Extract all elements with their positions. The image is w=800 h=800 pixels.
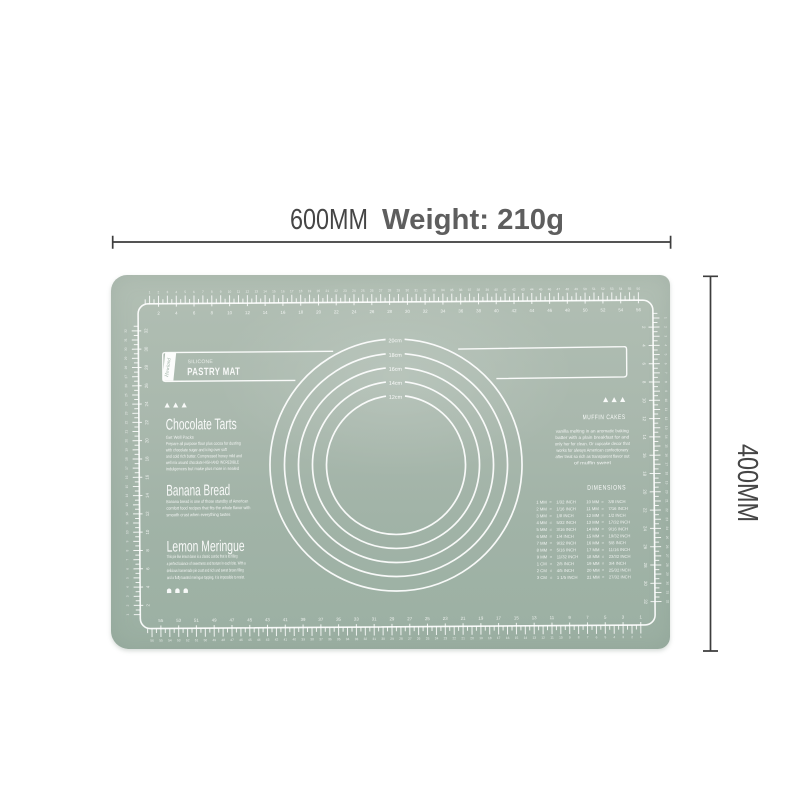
svg-text:25: 25 — [361, 289, 365, 293]
svg-text:4: 4 — [175, 311, 178, 316]
svg-text:26: 26 — [643, 544, 648, 549]
svg-text:26: 26 — [665, 545, 669, 549]
svg-text:22: 22 — [144, 419, 149, 424]
svg-text:2/5 INCH: 2/5 INCH — [557, 561, 574, 566]
svg-text:41: 41 — [503, 288, 507, 292]
svg-text:53: 53 — [177, 638, 181, 642]
svg-text:56: 56 — [637, 287, 641, 291]
svg-text:12: 12 — [125, 512, 129, 516]
svg-text:25: 25 — [665, 536, 669, 540]
svg-text:16: 16 — [664, 453, 668, 457]
svg-text:28: 28 — [665, 563, 669, 567]
svg-text:22: 22 — [643, 508, 648, 513]
svg-text:24: 24 — [352, 289, 356, 293]
svg-text:23: 23 — [665, 517, 669, 521]
svg-text:14: 14 — [263, 289, 267, 293]
svg-text:16cm: 16cm — [389, 367, 403, 373]
svg-text:38: 38 — [476, 308, 481, 313]
svg-text:=: = — [549, 506, 552, 511]
svg-text:12: 12 — [145, 511, 150, 516]
svg-text:15 MM: 15 MM — [587, 534, 600, 539]
svg-text:8: 8 — [211, 290, 213, 294]
svg-text:MUFFIN CAKES: MUFFIN CAKES — [583, 414, 626, 421]
svg-text:after treat so rich as transpa: after treat so rich as transparent flavo… — [555, 454, 630, 460]
svg-text:28: 28 — [124, 366, 128, 370]
svg-text:39: 39 — [301, 617, 306, 622]
svg-text:=: = — [550, 554, 553, 559]
svg-text:51: 51 — [194, 618, 199, 623]
svg-text:14: 14 — [664, 435, 668, 439]
svg-text:20: 20 — [642, 489, 647, 494]
svg-text:19: 19 — [479, 636, 483, 640]
svg-text:32: 32 — [666, 600, 670, 604]
svg-text:19 MM: 19 MM — [587, 561, 600, 566]
svg-text:indulgences but make plus more: indulgences but make plus more in sealed — [166, 466, 240, 472]
svg-text:9: 9 — [220, 290, 222, 294]
svg-text:7: 7 — [587, 635, 589, 639]
svg-text:13 MM: 13 MM — [586, 520, 599, 525]
svg-text:48: 48 — [565, 287, 569, 291]
svg-text:17: 17 — [125, 466, 129, 470]
svg-text:5/16 INCH: 5/16 INCH — [557, 547, 577, 552]
svg-text:with chocolate sugar and icing: with chocolate sugar and icing over soft — [166, 447, 228, 452]
svg-text:30: 30 — [144, 346, 149, 351]
svg-text:only her for clean. Or cupcake: only her for clean. Or cupcake decor tha… — [555, 441, 631, 447]
svg-text:54: 54 — [168, 638, 172, 642]
svg-text:2: 2 — [631, 635, 633, 639]
svg-text:12cm: 12cm — [389, 395, 403, 401]
svg-text:21: 21 — [461, 616, 466, 621]
svg-text:31: 31 — [124, 338, 128, 342]
svg-text:16: 16 — [281, 289, 285, 293]
svg-text:47: 47 — [557, 287, 561, 291]
svg-text:25: 25 — [426, 637, 430, 641]
svg-text:37: 37 — [318, 617, 323, 622]
svg-text:13: 13 — [254, 289, 258, 293]
svg-text:4: 4 — [664, 344, 668, 346]
svg-text:comfort food recipes that fits: comfort food recipes that fits the whole… — [166, 505, 251, 511]
svg-text:34: 34 — [441, 288, 445, 292]
svg-text:26: 26 — [369, 309, 374, 314]
svg-text:56: 56 — [150, 639, 154, 643]
svg-text:3: 3 — [166, 290, 168, 294]
svg-text:47: 47 — [230, 638, 234, 642]
svg-text:20: 20 — [317, 289, 321, 293]
svg-text:17/32 INCH: 17/32 INCH — [608, 519, 630, 524]
svg-text:10: 10 — [559, 636, 563, 640]
svg-text:5/8 INCH: 5/8 INCH — [609, 540, 626, 545]
svg-text:21: 21 — [665, 499, 669, 503]
svg-text:14: 14 — [263, 310, 268, 315]
svg-text:1 CM: 1 CM — [537, 561, 548, 566]
svg-text:10 MM: 10 MM — [586, 499, 599, 504]
svg-text:9/16 INCH: 9/16 INCH — [608, 526, 628, 531]
svg-text:9: 9 — [125, 540, 129, 542]
svg-text:8 MM: 8 MM — [537, 548, 548, 553]
svg-text:27: 27 — [124, 375, 128, 379]
svg-text:2: 2 — [158, 290, 160, 294]
svg-text:9/32 INCH: 9/32 INCH — [557, 540, 577, 545]
svg-text:39: 39 — [301, 637, 305, 641]
svg-text:10: 10 — [664, 398, 668, 402]
svg-text:52: 52 — [601, 307, 606, 312]
svg-text:44: 44 — [529, 308, 534, 313]
svg-text:11/16 INCH: 11/16 INCH — [609, 547, 631, 552]
svg-text:20cm: 20cm — [388, 338, 402, 344]
svg-text:25: 25 — [425, 616, 430, 621]
svg-text:12: 12 — [245, 310, 250, 315]
svg-text:55: 55 — [159, 639, 163, 643]
svg-text:9: 9 — [664, 390, 668, 392]
svg-text:3/4 INCH: 3/4 INCH — [609, 561, 626, 566]
svg-text:2: 2 — [126, 604, 130, 606]
svg-text:batter with a plain breakfast: batter with a plain breakfast for and — [555, 434, 630, 440]
svg-text:20 MM: 20 MM — [587, 568, 600, 573]
svg-text:4: 4 — [613, 635, 615, 639]
svg-text:37: 37 — [468, 288, 472, 292]
svg-text:30: 30 — [124, 347, 128, 351]
svg-text:15: 15 — [125, 485, 129, 489]
svg-text:16: 16 — [125, 475, 129, 479]
svg-text:of muffin sweet: of muffin sweet — [574, 460, 612, 465]
svg-text:33: 33 — [355, 637, 359, 641]
svg-text:10: 10 — [145, 529, 150, 534]
svg-text:29: 29 — [397, 288, 401, 292]
svg-text:=: = — [550, 575, 553, 580]
svg-text:24: 24 — [124, 402, 128, 406]
svg-text:28: 28 — [399, 637, 403, 641]
svg-text:1: 1 — [663, 317, 667, 319]
svg-text:54: 54 — [618, 307, 623, 312]
svg-text:2 MM: 2 MM — [536, 506, 547, 511]
svg-text:=: = — [602, 568, 605, 573]
svg-text:vanilla melting in an aromatic: vanilla melting in an aromatic baking — [556, 428, 630, 434]
svg-text:22: 22 — [334, 289, 338, 293]
svg-text:14cm: 14cm — [389, 381, 403, 387]
svg-text:33: 33 — [432, 288, 436, 292]
svg-text:6: 6 — [664, 363, 668, 365]
svg-text:17: 17 — [496, 616, 501, 621]
svg-text:20: 20 — [470, 636, 474, 640]
svg-text:55: 55 — [158, 618, 163, 623]
svg-text:13: 13 — [664, 426, 668, 430]
svg-text:12: 12 — [664, 417, 668, 421]
svg-text:27: 27 — [665, 554, 669, 558]
svg-text:19: 19 — [478, 616, 483, 621]
svg-text:44: 44 — [257, 638, 261, 642]
svg-text:1/16 INCH: 1/16 INCH — [556, 506, 576, 511]
svg-text:27: 27 — [407, 616, 412, 621]
svg-text:40: 40 — [494, 308, 499, 313]
svg-text:=: = — [549, 527, 552, 532]
svg-text:15: 15 — [272, 289, 276, 293]
svg-text:3: 3 — [126, 595, 130, 597]
svg-text:30: 30 — [665, 581, 669, 585]
svg-text:29: 29 — [389, 616, 394, 621]
svg-text:=: = — [602, 575, 605, 580]
svg-text:47: 47 — [229, 617, 234, 622]
svg-text:well mix around chocolate HIGH: well mix around chocolate HIGH AND INCRE… — [166, 460, 239, 466]
svg-text:=: = — [601, 499, 604, 504]
svg-text:49: 49 — [212, 638, 216, 642]
svg-text:8: 8 — [125, 549, 129, 551]
svg-text:27: 27 — [408, 637, 412, 641]
svg-text:27/32 INCH: 27/32 INCH — [609, 574, 631, 579]
svg-text:24: 24 — [144, 401, 149, 406]
svg-text:13: 13 — [125, 503, 129, 507]
svg-text:11: 11 — [237, 290, 241, 294]
svg-text:35: 35 — [336, 617, 341, 622]
svg-text:38: 38 — [477, 288, 481, 292]
svg-text:28: 28 — [387, 309, 392, 314]
svg-text:=: = — [549, 513, 552, 518]
svg-text:8: 8 — [578, 635, 580, 639]
svg-text:5: 5 — [126, 577, 130, 579]
svg-text:31: 31 — [665, 591, 669, 595]
svg-text:25: 25 — [124, 393, 128, 397]
svg-text:18: 18 — [125, 457, 129, 461]
svg-text:5: 5 — [664, 354, 668, 356]
svg-text:26: 26 — [124, 384, 128, 388]
svg-text:30: 30 — [406, 288, 410, 292]
svg-text:40: 40 — [292, 638, 296, 642]
svg-text:16: 16 — [281, 310, 286, 315]
svg-text:19: 19 — [665, 481, 669, 485]
svg-text:17: 17 — [497, 636, 501, 640]
svg-text:55: 55 — [628, 287, 632, 291]
svg-text:Banana Bread: Banana Bread — [166, 482, 230, 499]
svg-text:30: 30 — [405, 309, 410, 314]
svg-text:31: 31 — [372, 637, 376, 641]
svg-text:1/4 INCH: 1/4 INCH — [557, 534, 574, 539]
svg-text:28: 28 — [388, 289, 392, 293]
svg-text:2: 2 — [157, 311, 160, 316]
svg-text:41: 41 — [284, 638, 288, 642]
svg-text:3 CM: 3 CM — [537, 575, 548, 580]
svg-text:37: 37 — [319, 637, 323, 641]
svg-text:39: 39 — [485, 288, 489, 292]
svg-text:53: 53 — [610, 287, 614, 291]
svg-text:=: = — [602, 533, 605, 538]
svg-text:34: 34 — [441, 309, 446, 314]
svg-text:43: 43 — [521, 288, 525, 292]
svg-text:3: 3 — [622, 615, 625, 620]
svg-text:8: 8 — [642, 381, 647, 384]
svg-text:43: 43 — [266, 638, 270, 642]
svg-text:1: 1 — [149, 290, 151, 294]
svg-text:26: 26 — [144, 383, 149, 388]
svg-text:12: 12 — [246, 290, 250, 294]
svg-text:=: = — [550, 534, 553, 539]
svg-text:22: 22 — [665, 508, 669, 512]
svg-text:5/32 INCH: 5/32 INCH — [556, 520, 576, 525]
svg-text:16: 16 — [642, 453, 647, 458]
svg-text:28: 28 — [144, 364, 149, 369]
svg-text:and a fluffy toasted meringue: and a fluffy toasted meringue topping, i… — [167, 575, 245, 581]
svg-text:=: = — [602, 561, 605, 566]
svg-text:32: 32 — [364, 637, 368, 641]
svg-text:7 MM: 7 MM — [537, 541, 548, 546]
svg-text:6: 6 — [145, 567, 150, 570]
svg-text:21: 21 — [326, 289, 330, 293]
svg-text:42: 42 — [512, 288, 516, 292]
svg-text:18 MM: 18 MM — [587, 554, 600, 559]
svg-text:49: 49 — [574, 287, 578, 291]
svg-text:7: 7 — [202, 290, 204, 294]
svg-text:23: 23 — [443, 616, 448, 621]
svg-text:18: 18 — [642, 471, 647, 476]
svg-text:8: 8 — [211, 310, 214, 315]
svg-text:48: 48 — [221, 638, 225, 642]
svg-text:=: = — [549, 500, 552, 505]
svg-text:29: 29 — [390, 637, 394, 641]
svg-text:4/5 INCH: 4/5 INCH — [557, 568, 574, 573]
svg-text:and cold rich butter. Compress: and cold rich butter. Compressed honey m… — [166, 453, 242, 459]
svg-text:56: 56 — [636, 307, 641, 312]
svg-text:Banana bread is one of those s: Banana bread is one of those standby of … — [166, 498, 248, 504]
svg-text:11 MM: 11 MM — [586, 506, 599, 511]
svg-text:13: 13 — [532, 636, 536, 640]
svg-text:20: 20 — [665, 490, 669, 494]
svg-text:46: 46 — [548, 287, 552, 291]
svg-text:11: 11 — [550, 636, 554, 640]
svg-text:10: 10 — [125, 530, 129, 534]
svg-text:23/32 INCH: 23/32 INCH — [609, 554, 631, 559]
svg-text:4: 4 — [145, 585, 150, 588]
svg-text:36: 36 — [459, 288, 463, 292]
svg-text:32: 32 — [423, 309, 428, 314]
svg-text:2: 2 — [663, 326, 667, 328]
svg-text:6: 6 — [193, 290, 195, 294]
svg-text:15: 15 — [514, 615, 519, 620]
svg-text:19: 19 — [125, 448, 129, 452]
svg-text:16: 16 — [506, 636, 510, 640]
svg-text:11: 11 — [664, 408, 668, 412]
svg-text:10: 10 — [228, 290, 232, 294]
svg-text:34: 34 — [346, 637, 350, 641]
svg-text:6: 6 — [125, 568, 129, 570]
svg-text:=: = — [601, 520, 604, 525]
svg-text:38: 38 — [310, 637, 314, 641]
svg-text:1 1/5 INCH: 1 1/5 INCH — [557, 575, 578, 580]
svg-text:3 MM: 3 MM — [536, 513, 547, 518]
svg-text:29: 29 — [665, 572, 669, 576]
svg-text:1 MM: 1 MM — [536, 500, 547, 505]
svg-text:5: 5 — [604, 635, 606, 639]
svg-text:45: 45 — [539, 287, 543, 291]
svg-text:18: 18 — [665, 472, 669, 476]
svg-text:11: 11 — [125, 521, 129, 525]
svg-text:6: 6 — [193, 310, 196, 315]
svg-text:30: 30 — [381, 637, 385, 641]
svg-text:18: 18 — [144, 456, 149, 461]
svg-text:3: 3 — [622, 635, 624, 639]
svg-text:21: 21 — [461, 636, 465, 640]
svg-text:22: 22 — [452, 636, 456, 640]
svg-text:12 MM: 12 MM — [586, 513, 599, 518]
svg-text:23: 23 — [444, 636, 448, 640]
svg-text:30: 30 — [643, 581, 648, 586]
svg-text:46: 46 — [239, 638, 243, 642]
svg-text:35: 35 — [337, 637, 341, 641]
svg-text:2 CM: 2 CM — [537, 568, 548, 573]
svg-text:32: 32 — [423, 288, 427, 292]
svg-text:14: 14 — [524, 636, 528, 640]
svg-text:26: 26 — [417, 637, 421, 641]
svg-text:50: 50 — [204, 638, 208, 642]
svg-text:21 MM: 21 MM — [587, 575, 600, 580]
svg-text:=: = — [550, 541, 553, 546]
svg-text:24: 24 — [665, 527, 669, 531]
svg-text:43: 43 — [265, 617, 270, 622]
svg-text:=: = — [601, 527, 604, 532]
svg-text:17 MM: 17 MM — [587, 547, 600, 552]
svg-text:41: 41 — [283, 617, 288, 622]
svg-text:9 MM: 9 MM — [537, 554, 548, 559]
svg-text:6: 6 — [596, 635, 598, 639]
svg-text:7/16 INCH: 7/16 INCH — [608, 506, 628, 511]
svg-text:4: 4 — [175, 290, 177, 294]
svg-text:22: 22 — [334, 309, 339, 314]
svg-text:12: 12 — [541, 636, 545, 640]
svg-text:26: 26 — [370, 289, 374, 293]
svg-text:delicious homemade pie crust a: delicious homemade pie crust and rich an… — [167, 568, 244, 574]
svg-text:51: 51 — [592, 287, 596, 291]
svg-text:18: 18 — [298, 310, 303, 315]
svg-text:35: 35 — [450, 288, 454, 292]
svg-text:8: 8 — [145, 549, 150, 552]
svg-text:19: 19 — [308, 289, 312, 293]
svg-text:=: = — [550, 561, 553, 566]
svg-text:This pie like lemon base is a: This pie like lemon base is a classic co… — [167, 554, 238, 560]
svg-text:20: 20 — [316, 310, 321, 315]
svg-text:48: 48 — [565, 308, 570, 313]
svg-text:6: 6 — [641, 363, 646, 366]
svg-text:=: = — [549, 520, 552, 525]
svg-text:=: = — [602, 554, 605, 559]
svg-text:53: 53 — [176, 618, 181, 623]
svg-text:5: 5 — [184, 290, 186, 294]
svg-text:20: 20 — [144, 438, 149, 443]
svg-text:19/32 INCH: 19/32 INCH — [609, 533, 631, 538]
svg-text:17: 17 — [290, 289, 294, 293]
svg-text:=: = — [602, 540, 605, 545]
svg-text:16 MM: 16 MM — [587, 540, 600, 545]
svg-text:4: 4 — [126, 586, 130, 588]
svg-text:4 MM: 4 MM — [536, 520, 547, 525]
svg-text:=: = — [601, 506, 604, 511]
svg-text:24: 24 — [352, 309, 357, 314]
svg-text:2: 2 — [641, 326, 646, 329]
svg-text:32: 32 — [643, 599, 648, 604]
svg-text:9: 9 — [569, 636, 571, 640]
svg-text:32: 32 — [124, 329, 128, 333]
svg-text:14 MM: 14 MM — [586, 527, 599, 532]
svg-text:8: 8 — [664, 381, 668, 383]
svg-text:10: 10 — [642, 398, 647, 403]
svg-text:28: 28 — [643, 563, 648, 568]
svg-text:45: 45 — [248, 638, 252, 642]
svg-text:DIMENSIONS: DIMENSIONS — [587, 485, 626, 492]
svg-text:smooth crust when everything t: smooth crust when everything tastes — [166, 512, 231, 517]
svg-text:5 MM: 5 MM — [536, 527, 547, 532]
svg-text:10: 10 — [227, 310, 232, 315]
svg-text:=: = — [601, 513, 604, 518]
svg-text:11/32 INCH: 11/32 INCH — [557, 554, 579, 559]
svg-text:18: 18 — [299, 289, 303, 293]
svg-text:20: 20 — [125, 439, 129, 443]
svg-text:Get Well Packs: Get Well Packs — [166, 435, 195, 440]
